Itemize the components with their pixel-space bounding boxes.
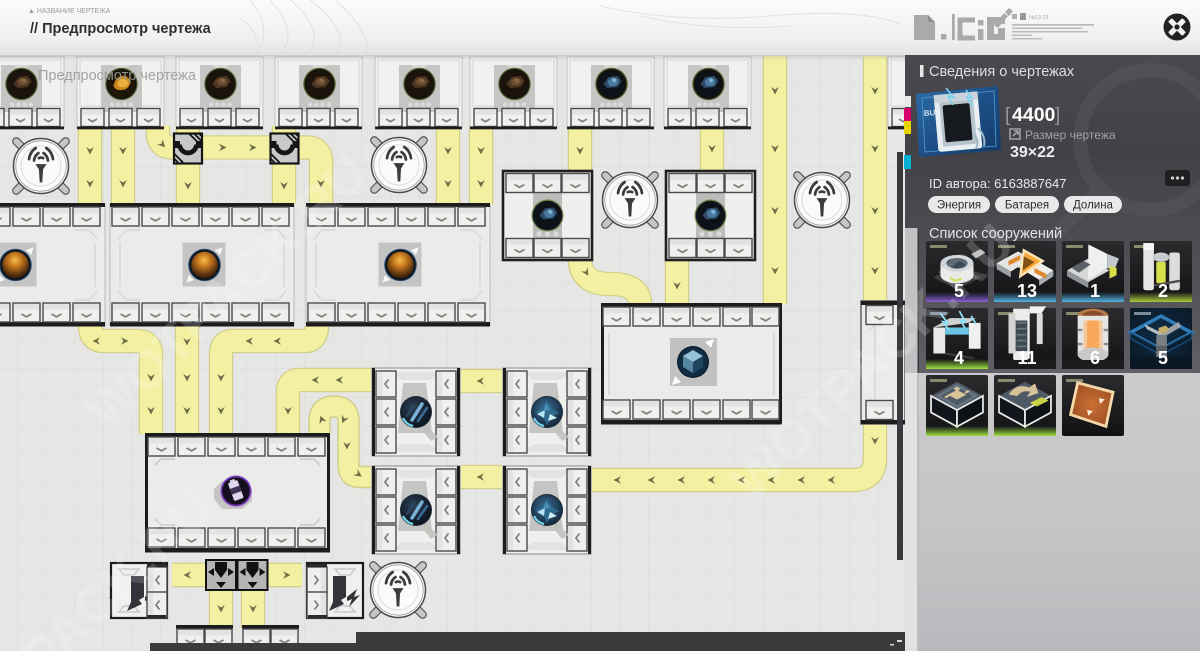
svg-text:6: 6 <box>1090 348 1100 368</box>
svg-text:13: 13 <box>1017 281 1037 301</box>
svg-text:4: 4 <box>954 348 964 368</box>
svg-text:// Предпросмотр чертежа: // Предпросмотр чертежа <box>30 21 212 37</box>
svg-text:Сведения о чертежах: Сведения о чертежах <box>929 64 1075 80</box>
svg-text:4400: 4400 <box>1012 104 1056 126</box>
svg-text:ID автора: 6163887647: ID автора: 6163887647 <box>929 176 1066 191</box>
svg-text:5: 5 <box>1158 348 1168 368</box>
svg-text:39×22: 39×22 <box>1010 144 1055 161</box>
svg-text:▲ НАЗВАНИЕ ЧЕРТЕЖА: ▲ НАЗВАНИЕ ЧЕРТЕЖА <box>28 8 111 15</box>
svg-text:Размер чертежа: Размер чертежа <box>1025 128 1116 142</box>
svg-text:BU: BU <box>924 108 936 118</box>
svg-text:Долина: Долина <box>1073 200 1114 212</box>
svg-text:Предпросмотр чертежа: Предпросмотр чертежа <box>38 68 197 84</box>
svg-text:11: 11 <box>1017 348 1036 368</box>
svg-text:Батарея: Батарея <box>1005 200 1049 212</box>
svg-text:]: ] <box>1055 105 1060 126</box>
svg-text:Энергия: Энергия <box>937 200 981 212</box>
svg-text:[: [ <box>1005 105 1011 126</box>
svg-text:№13-21: №13-21 <box>1029 15 1049 21</box>
svg-text:1: 1 <box>1090 281 1100 301</box>
svg-text:2: 2 <box>1158 281 1168 301</box>
